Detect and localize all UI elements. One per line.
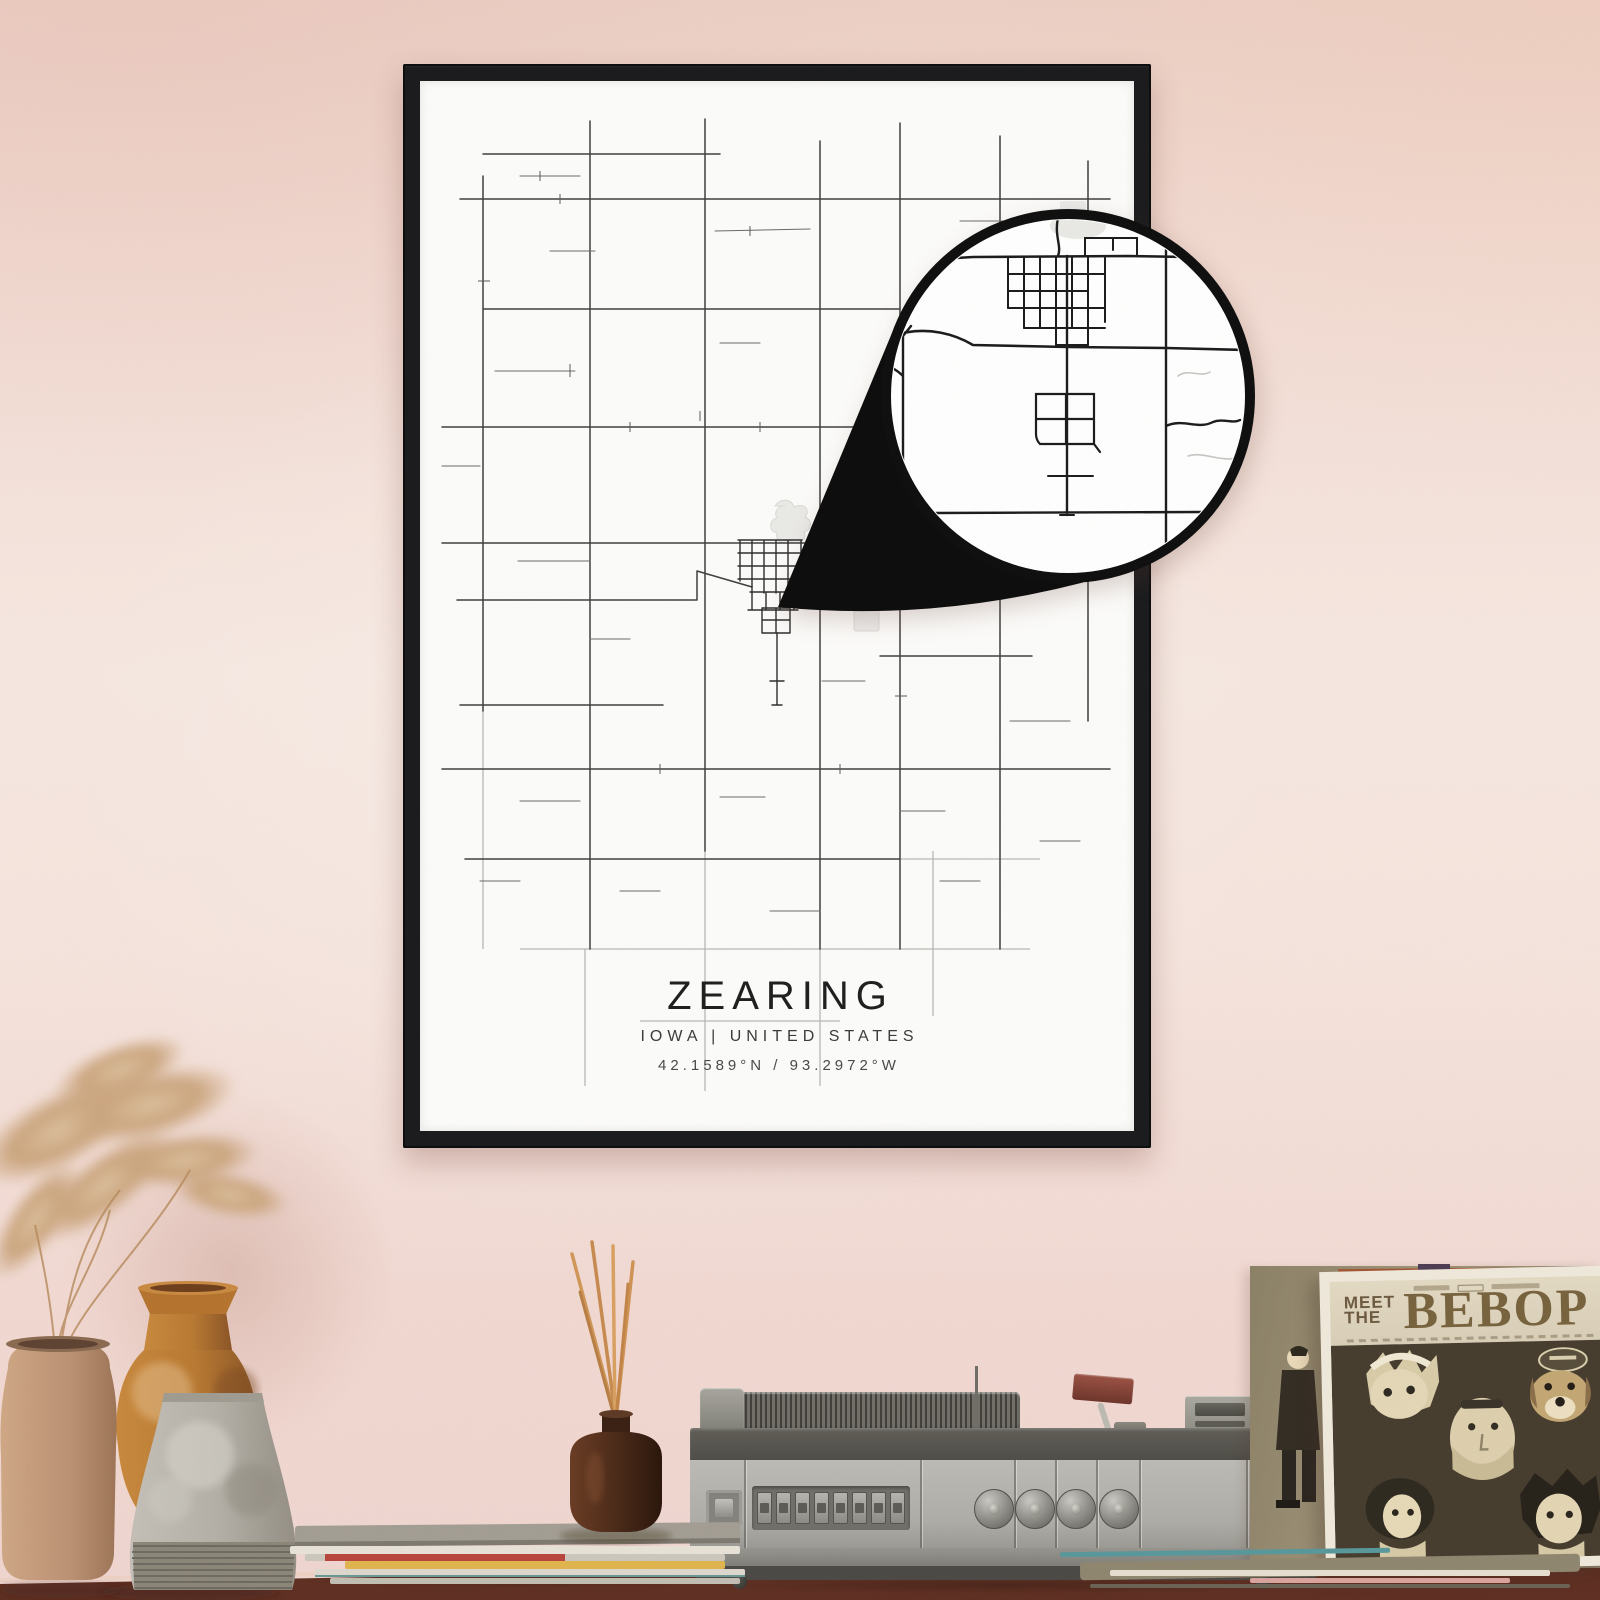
poster-city-title: ZEARING bbox=[420, 974, 1134, 1019]
preset-button bbox=[871, 1492, 886, 1524]
flat-records bbox=[1050, 1536, 1600, 1600]
album-artwork bbox=[1331, 1340, 1600, 1562]
preset-button bbox=[757, 1492, 772, 1524]
treble-knob bbox=[1056, 1489, 1096, 1529]
bass-knob bbox=[1015, 1489, 1055, 1529]
album-cover: MEET THE BEBOP bbox=[1319, 1265, 1600, 1572]
diffuser-bottle bbox=[570, 1410, 662, 1532]
cassette-slot bbox=[1195, 1421, 1245, 1427]
volume-knob bbox=[974, 1489, 1014, 1529]
character-face-center bbox=[1449, 1397, 1516, 1481]
reed-sticks bbox=[572, 1242, 633, 1420]
panel-seam bbox=[1139, 1460, 1141, 1548]
album-header-band: MEET THE BEBOP bbox=[1329, 1276, 1600, 1346]
preset-button bbox=[833, 1492, 848, 1524]
preset-button bbox=[852, 1492, 867, 1524]
cassette-key bbox=[1195, 1403, 1245, 1416]
poster-region-line: IOWA | UNITED STATES bbox=[420, 1028, 1134, 1046]
turntable-hinge bbox=[700, 1388, 744, 1432]
panel-seam bbox=[1246, 1460, 1248, 1548]
preset-button bbox=[795, 1492, 810, 1524]
vase-tan bbox=[0, 1336, 116, 1580]
preset-button-row bbox=[752, 1486, 910, 1530]
character-dog-face bbox=[1529, 1348, 1592, 1423]
preset-button bbox=[890, 1492, 905, 1524]
poster-coordinates: 42.1589°N / 93.2972°W bbox=[420, 1057, 1134, 1074]
album-title-bebop: BEBOP bbox=[1403, 1286, 1590, 1334]
magnifier-loupe bbox=[720, 160, 1280, 660]
spindle-rod bbox=[975, 1366, 978, 1428]
preset-button bbox=[776, 1492, 791, 1524]
character-face-upsidedown bbox=[1366, 1349, 1440, 1419]
album-word-the: THE bbox=[1344, 1309, 1396, 1325]
vase-group bbox=[0, 1240, 320, 1600]
preset-button bbox=[814, 1492, 829, 1524]
poster-text-block: ZEARING IOWA | UNITED STATES 42.1589°N /… bbox=[420, 974, 1134, 1074]
album-cover-inner: MEET THE BEBOP bbox=[1329, 1276, 1600, 1562]
panel-seam bbox=[920, 1460, 922, 1548]
deck-band bbox=[690, 1428, 1322, 1460]
turntable-platter bbox=[700, 1392, 1020, 1432]
panel-seam bbox=[1096, 1460, 1098, 1548]
tuning-knob bbox=[1099, 1489, 1139, 1529]
tonearm-headshell bbox=[1072, 1373, 1134, 1404]
album-title-meet-the: MEET THE bbox=[1344, 1294, 1396, 1325]
product-photo-scene: ZEARING IOWA | UNITED STATES 42.1589°N /… bbox=[0, 0, 1600, 1600]
reed-diffuser bbox=[520, 1240, 690, 1590]
front-panel bbox=[690, 1460, 1322, 1548]
